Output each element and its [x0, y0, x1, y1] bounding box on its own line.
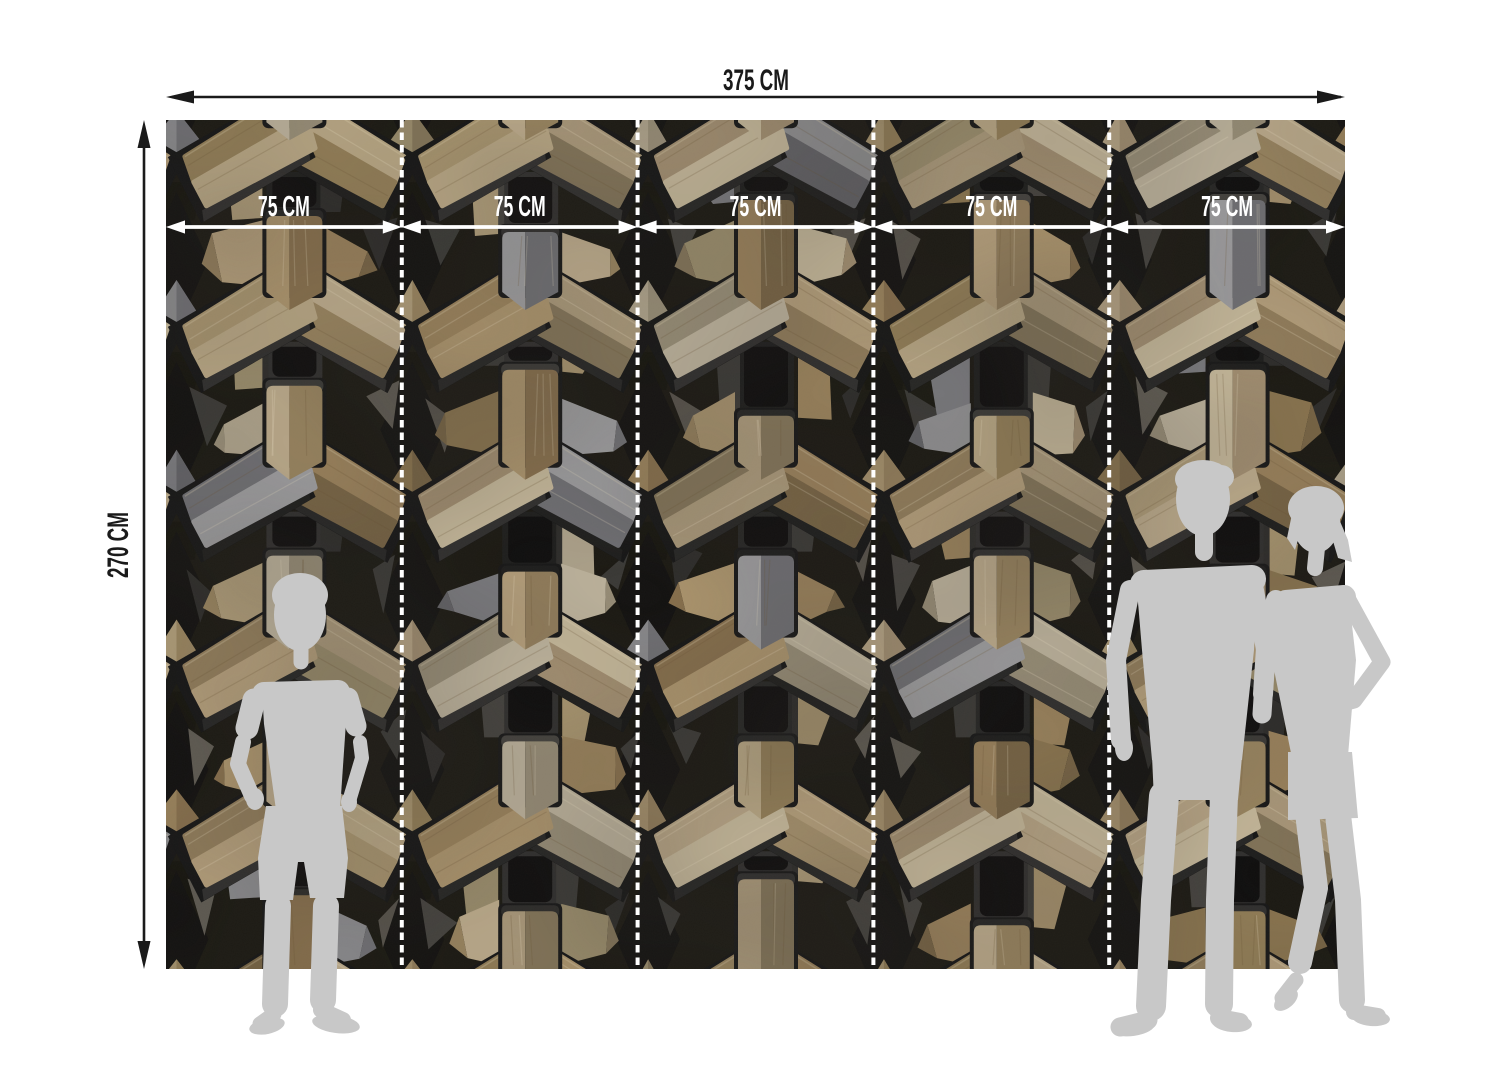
svg-text:75 CM: 75 CM — [965, 191, 1017, 223]
svg-text:270 CM: 270 CM — [102, 512, 135, 578]
svg-text:75 CM: 75 CM — [730, 191, 782, 223]
svg-text:75 CM: 75 CM — [258, 191, 310, 223]
svg-text:75 CM: 75 CM — [494, 191, 546, 223]
svg-text:375 CM: 375 CM — [723, 64, 789, 97]
svg-text:75 CM: 75 CM — [1201, 191, 1253, 223]
